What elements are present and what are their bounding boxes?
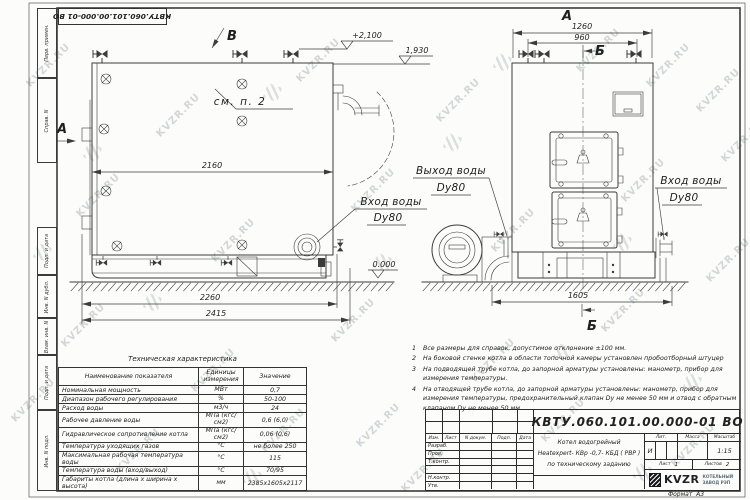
lit-label: Лит.	[645, 434, 678, 441]
col-header-value: Значение	[244, 368, 306, 385]
notes: 1Все размеры для справок, допустимое отк…	[412, 344, 740, 414]
table-cell: мм	[199, 476, 244, 490]
table-cell: Гидравлическое сопротивление котла	[59, 428, 199, 442]
table-cell: МВт	[199, 386, 244, 394]
table-cell: Номинальная мощность	[59, 386, 199, 394]
table-cell: Габариты котла (длина х ширина х высота)	[59, 476, 199, 490]
inlet-label-left-view: Вход воды	[360, 196, 421, 208]
col-header-name: Наименование показателя	[59, 368, 199, 385]
stamp-row	[426, 466, 533, 474]
doc-number-stamp-text: КВТУ.060.101.00.000-01 ВО	[53, 12, 171, 21]
table-row: Габариты котла (длина х ширина х высота)…	[59, 476, 306, 490]
water-inlet-flange	[294, 234, 320, 260]
note-item: 2На боковой стенке котла в области топоч…	[412, 354, 740, 363]
revision-grid	[426, 410, 534, 434]
table-cell: МПа (кгс/см2)	[199, 428, 244, 442]
margin-label: Инв. N дубл.	[37, 275, 57, 318]
table-cell: °С	[199, 443, 244, 451]
col-izm: Изм.	[426, 434, 443, 442]
product-note: по техническому заданию	[534, 460, 644, 471]
table-cell: 0,7	[244, 386, 306, 394]
view-label-a-top: А	[561, 9, 572, 24]
inlet-label-right-view: Вход воды	[660, 175, 721, 187]
table-cell: Максимальная рабочая температура воды	[59, 452, 199, 466]
table-cell: 24	[244, 404, 306, 412]
scale-label: Масштаб	[708, 434, 741, 441]
table-cell: 70/95	[244, 467, 306, 475]
tech-table-title: Техническая характеристика	[58, 355, 307, 363]
table-row: Номинальная мощностьМВт0,7	[59, 386, 306, 395]
scale-value: 1:15	[708, 442, 741, 459]
table-row: Температура уходящих газов°Сне более 250	[59, 443, 306, 452]
title-block: КВТУ.060.101.00.000-01 ВО Изм. Лист N до…	[425, 409, 740, 491]
logo-icon	[649, 473, 661, 487]
table-cell: °С	[199, 452, 244, 466]
ground-hatch-left	[71, 283, 393, 291]
view-label-b: В	[227, 29, 237, 44]
title-block-right: Лит. Масса Масштаб И 1:15 Лист 1 Листов …	[645, 434, 741, 489]
signature-grid-header: Изм. Лист N докум. Подп. Дата	[426, 434, 533, 443]
product-name: Котел водогрейный	[534, 438, 644, 449]
table-row: Гидравлическое сопротивление котлаМПа (к…	[59, 428, 306, 443]
section-label-b-top: Б	[595, 44, 605, 59]
dim-1605: 1605	[568, 291, 588, 300]
tech-table-header: Наименование показателя Единицы измерени…	[59, 368, 306, 386]
elevation-pipe: 1,930	[406, 46, 429, 55]
table-cell: °С	[199, 467, 244, 475]
outlet-label: Выход воды	[416, 165, 486, 177]
stamp-row: Пров.	[426, 451, 533, 459]
margin-label: Подп. и дата	[37, 355, 57, 410]
table-cell: 50-100	[244, 395, 306, 403]
brand-subtitle: КОТЕЛЬНЫЙ ЗАВОД РЭП	[702, 474, 733, 485]
dim-1260: 1260	[572, 22, 592, 31]
elevation-top: +2,100	[352, 31, 382, 40]
section-label-b-bottom: Б	[587, 319, 597, 334]
table-row: Температура воды (вход/выход)°С70/95	[59, 467, 306, 476]
drawing-sheet: KVZR.RUKVZR.RUKVZR.RUKVZR.RUKVZR.RUKVZR.…	[0, 0, 750, 500]
lower-furnace-door	[552, 192, 622, 248]
margin-label: Подп. и дата	[37, 227, 57, 275]
water-inlet-connection	[656, 232, 672, 282]
col-podp: Подп.	[492, 434, 517, 442]
stamp-row: Т.контр.	[426, 459, 533, 467]
signature-grid: Изм. Лист N докум. Подп. Дата Разраб.Про…	[426, 434, 534, 489]
table-row: Рабочее давление водыМПа (кгс/см2)0,6 (6…	[59, 413, 306, 428]
stamp-row: Н.контр.	[426, 474, 533, 482]
ground-hatch-right	[423, 283, 685, 291]
doc-number-stamp: КВТУ.060.101.00.000-01 ВО	[58, 8, 167, 25]
table-cell: 0,06 (0,6)	[244, 428, 306, 442]
table-cell: Диапазон рабочего регулирования	[59, 395, 199, 403]
doc-number: КВТУ.060.101.00.000-01 ВО	[534, 410, 741, 434]
sheets-cell: Листов 2	[693, 460, 741, 469]
col-list: Лист	[443, 434, 460, 442]
description-cell: Котел водогрейный Heatexpert- КВр -0,7- …	[534, 434, 645, 489]
table-cell: не более 250	[244, 443, 306, 451]
table-row: Расход водым3/ч24	[59, 404, 306, 413]
col-header-units: Единицы измерения	[199, 368, 244, 385]
table-row: Максимальная рабочая температура воды°С1…	[59, 452, 306, 467]
table-cell: м3/ч	[199, 404, 244, 412]
margin-label: Перв. примен.	[37, 8, 57, 78]
mass-value	[678, 442, 708, 459]
table-cell: 115	[244, 452, 306, 466]
note-item: 3На подводящей трубе котла, до запорной …	[412, 365, 740, 384]
view-label-a-left: А	[56, 122, 67, 137]
table-cell: Рабочее давление воды	[59, 413, 199, 427]
inlet-dn-right-view: Dy80	[670, 192, 699, 204]
table-cell: МПа (кгс/см2)	[199, 413, 244, 427]
left-view-side: 2160 2260 2415 +2,100 1,930 0.000	[56, 28, 433, 324]
lit-value: И	[645, 442, 656, 459]
table-cell: Расход воды	[59, 404, 199, 412]
company-logo: KVZR КОТЕЛЬНЫЙ ЗАВОД РЭП	[645, 470, 741, 489]
note-item: 1Все размеры для справок, допустимое отк…	[412, 344, 740, 353]
col-dokum: N докум.	[460, 434, 493, 442]
see-note-label: см. п. 2	[214, 96, 267, 108]
table-cell: Температура уходящих газов	[59, 443, 199, 451]
table-cell: 2385х1605х2117	[244, 476, 306, 490]
dim-2160: 2160	[202, 161, 222, 170]
control-panel	[613, 92, 643, 116]
dim-960: 960	[574, 33, 589, 42]
inlet-dn-left-view: Dy80	[374, 212, 403, 224]
outlet-dn: Dy80	[437, 182, 466, 194]
margin-label: Инв. N подл.	[37, 410, 57, 491]
col-data: Дата	[517, 434, 533, 442]
tech-table: Наименование показателя Единицы измерени…	[58, 367, 307, 491]
dim-2260: 2260	[200, 293, 220, 302]
mass-label: Масса	[678, 434, 708, 441]
table-row: Диапазон рабочего регулирования%50-100	[59, 395, 306, 404]
brand-name: KVZR	[664, 473, 699, 486]
product-model: Heatexpert- КВр -0,7- КБД ( РВР )	[534, 449, 644, 460]
upper-furnace-door	[550, 132, 623, 188]
stamp-row: Утв.	[426, 482, 533, 489]
stamp-row: Разраб.	[426, 443, 533, 451]
sheet-cell: Лист 1	[645, 460, 693, 469]
dim-2415: 2415	[206, 309, 226, 318]
table-cell: %	[199, 395, 244, 403]
margin-label: Взам. инв. N	[37, 318, 57, 355]
table-cell: 0,6 (6,0)	[244, 413, 306, 427]
margin-label: Справ. N	[37, 78, 57, 163]
blower-fan	[432, 225, 512, 282]
elevation-zero: 0.000	[373, 260, 396, 269]
format-label: Формат А3	[632, 491, 740, 498]
right-view-front: 1260 960 1605 А Б Б Выход воды Dy80	[413, 9, 727, 334]
table-cell: Температура воды (вход/выход)	[59, 467, 199, 475]
